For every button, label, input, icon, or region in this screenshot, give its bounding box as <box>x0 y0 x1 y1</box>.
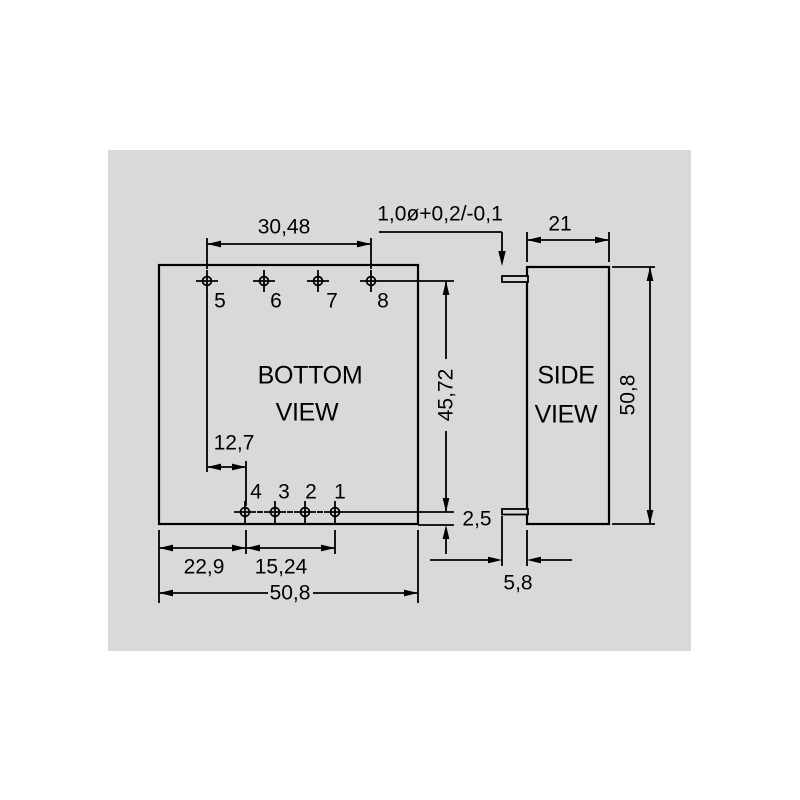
side-view-title-line1: SIDE <box>537 364 594 389</box>
pin-marker-3 <box>264 501 286 523</box>
pin-label-7: 7 <box>326 291 338 312</box>
dim-pin-row-bottom-offset-lines <box>443 525 450 554</box>
dim-pin-offset-left-label: 12,7 <box>214 433 255 454</box>
drawing-canvas: 30,48 1,0ø+0,2/-0,1 21 45,72 50,8 12,7 2… <box>108 150 691 651</box>
dim-pin-row-bottom-offset-label: 2,5 <box>462 509 491 530</box>
pin-label-6: 6 <box>270 291 282 312</box>
pin-diameter-leader <box>379 232 506 266</box>
dim-pin-span-bottom-label: 15,24 <box>255 557 308 578</box>
side-view-bottom-pin <box>502 509 528 515</box>
pin-label-2: 2 <box>305 482 317 503</box>
dim-pin-span-top-label: 30,48 <box>258 217 311 238</box>
pin-diameter-tolerance-label: 1,0ø+0,2/-0,1 <box>377 204 503 225</box>
bottom-view-title-line2: VIEW <box>276 401 339 426</box>
side-view-top-pin <box>502 276 528 282</box>
pin-label-4: 4 <box>250 482 262 503</box>
dim-left-edge-to-pin4-label: 22,9 <box>184 557 225 578</box>
dim-side-width-label: 21 <box>548 214 571 235</box>
pin-label-3: 3 <box>278 482 290 503</box>
dim-body-width-label: 50,8 <box>270 583 311 604</box>
side-view-title-line2: VIEW <box>535 403 598 428</box>
pin-marker-2 <box>294 501 316 523</box>
pin-label-5: 5 <box>214 291 226 312</box>
side-view-outline <box>527 267 609 524</box>
pin-label-8: 8 <box>377 291 389 312</box>
dim-pin-rows-distance-label: 45,72 <box>436 369 457 422</box>
dim-pin-offset-left-lines <box>207 461 246 506</box>
dim-pin-protrusion-label: 5,8 <box>503 573 532 594</box>
dim-side-height-label: 50,8 <box>618 375 639 416</box>
pin-marker-1 <box>324 501 346 523</box>
dim-side-width-lines <box>527 232 609 262</box>
bottom-view-title-line1: BOTTOM <box>258 364 363 389</box>
pin-marker-4 <box>234 501 256 523</box>
pin-label-1: 1 <box>334 482 346 503</box>
